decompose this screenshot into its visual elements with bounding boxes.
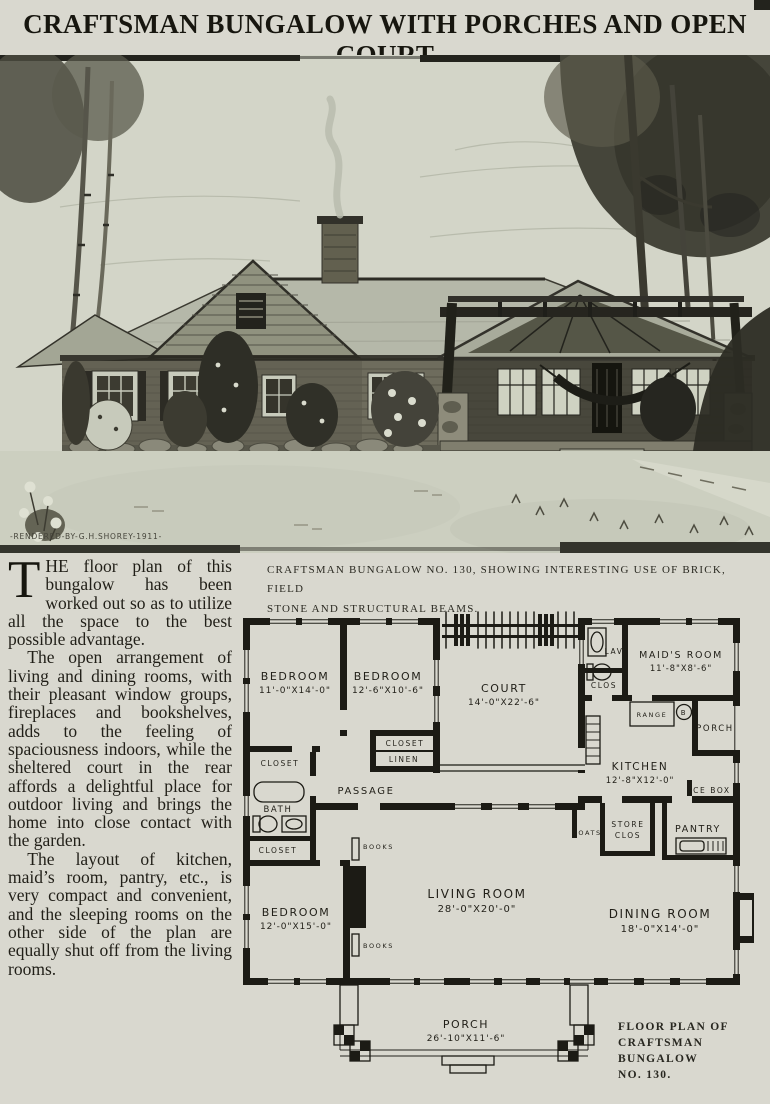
books-shelf-bottom xyxy=(352,934,359,956)
plan-caption-line3: BUNGALOW xyxy=(618,1053,698,1065)
label-closet-mid: CLOSET xyxy=(261,759,300,768)
bungalow-illustration: -RENDERED-BY-G.H.SHOREY-1911- xyxy=(0,55,770,553)
label-store-closet-1: STORE xyxy=(611,820,644,829)
court-pergola-lines xyxy=(440,765,585,771)
dims-maids-room: 11'-8"X8'-6" xyxy=(650,664,712,674)
bathtub xyxy=(254,782,304,802)
dims-bedroom3: 12'-0"X15'-0" xyxy=(260,922,332,932)
label-pantry: PANTRY xyxy=(675,824,721,835)
label-books-bottom: BOOKS xyxy=(363,942,394,950)
dims-porch-front: 26'-10"X11'-6" xyxy=(427,1034,506,1044)
label-range: RANGE xyxy=(637,711,668,719)
plan-caption-line1: FLOOR PLAN OF xyxy=(618,1021,729,1033)
label-porch-side: PORCH xyxy=(696,724,734,734)
label-bedroom2: BEDROOM xyxy=(354,670,423,683)
label-bedroom3: BEDROOM xyxy=(262,906,331,919)
article-paragraph-3: The layout of kitchen, maid’s room, pant… xyxy=(8,850,232,978)
label-closet-top: CLOSET xyxy=(386,739,425,748)
plan-caption-line2: CRAFTSMAN xyxy=(618,1037,703,1049)
label-porch-front: PORCH xyxy=(443,1018,489,1031)
article-paragraph-2: The open arrangement of living and dinin… xyxy=(8,648,232,849)
dims-court: 14'-0"X22'-6" xyxy=(468,698,540,708)
dims-dining-room: 18'-0"X14'-0" xyxy=(621,924,700,935)
bath-toilet xyxy=(259,816,277,832)
label-books-top: BOOKS xyxy=(363,843,394,851)
plan-caption: FLOOR PLAN OF CRAFTSMAN BUNGALOW NO. 130… xyxy=(618,1021,729,1081)
dims-bedroom1: 11'-0"X14'-0" xyxy=(259,686,331,696)
article-column: THE floor plan of this bungalow has been… xyxy=(8,557,232,978)
article-paragraph-1: THE floor plan of this bungalow has been… xyxy=(8,557,232,648)
label-coats: COATS xyxy=(572,829,602,837)
label-living-room: LIVING ROOM xyxy=(427,887,526,901)
scan-artifact xyxy=(754,0,770,10)
artist-signature: -RENDERED-BY-G.H.SHOREY-1911- xyxy=(10,532,162,541)
photo-caption-line1: CRAFTSMAN BUNGALOW NO. 130, SHOWING INTE… xyxy=(267,561,753,600)
label-bedroom1: BEDROOM xyxy=(261,670,330,683)
label-dining-room: DINING ROOM xyxy=(609,907,712,921)
paragraph-1-text: HE floor plan of this bungalow has been … xyxy=(8,556,232,649)
label-ice-box: ICE BOX xyxy=(689,786,730,795)
label-passage: PASSAGE xyxy=(337,786,394,797)
court-trellis xyxy=(442,612,578,648)
dims-bedroom2: 12'-6"X10'-6" xyxy=(352,686,424,696)
label-boiler: B xyxy=(681,709,687,717)
chimney xyxy=(322,221,358,283)
floor-plan: BEDROOM 11'-0"X14'-0" BEDROOM 12'-6"X10'… xyxy=(240,598,770,1104)
porch-steps-plan xyxy=(442,1056,494,1073)
label-clos: CLOS xyxy=(591,681,617,690)
label-store-closet-2: CLOS xyxy=(615,831,641,840)
label-kitchen: KITCHEN xyxy=(612,761,669,773)
label-linen: LINEN xyxy=(389,755,419,764)
label-maids-room: MAID'S ROOM xyxy=(639,650,723,661)
plan-book-page: CRAFTSMAN BUNGALOW WITH PORCHES AND OPEN… xyxy=(0,0,770,1104)
porch-beam xyxy=(440,307,752,317)
label-lav: LAV xyxy=(605,647,624,656)
dims-kitchen: 12'-8"X12'-0" xyxy=(606,776,675,786)
label-bath: BATH xyxy=(264,805,293,815)
books-shelf-top xyxy=(352,838,359,860)
label-closet-low: CLOSET xyxy=(259,846,298,855)
plan-caption-line4: NO. 130. xyxy=(618,1069,672,1081)
label-court: COURT xyxy=(481,682,527,695)
drop-cap: T xyxy=(8,559,40,602)
dims-living-room: 28'-0"X20'-0" xyxy=(438,904,517,915)
gable-vent xyxy=(236,293,266,329)
